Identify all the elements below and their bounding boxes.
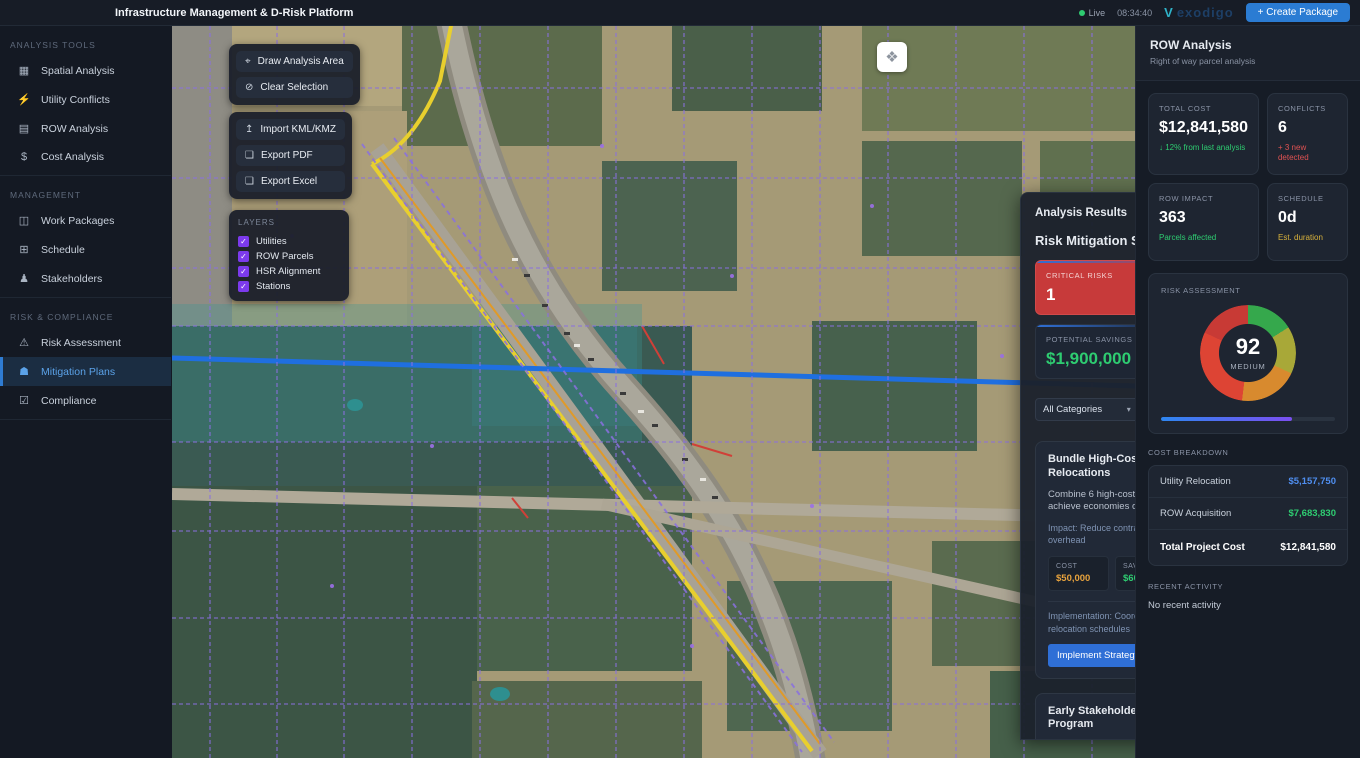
sidebar-item-mitigation-plans[interactable]: ☗Mitigation Plans bbox=[0, 357, 171, 386]
dollar-icon: $ bbox=[17, 151, 31, 163]
recent-activity-empty: No recent activity bbox=[1148, 600, 1348, 611]
grid-icon: ▦ bbox=[17, 64, 31, 77]
risk-progress-track bbox=[1161, 417, 1335, 421]
stat-card-value: 6 bbox=[1278, 119, 1337, 137]
cost-total-value: $12,841,580 bbox=[1280, 542, 1336, 553]
sidebar-item-risk-assessment[interactable]: ⚠Risk Assessment bbox=[0, 328, 171, 357]
cost-row-label: ROW Acquisition bbox=[1160, 508, 1231, 519]
sidebar-item-spatial-analysis[interactable]: ▦Spatial Analysis bbox=[0, 56, 171, 85]
calendar-icon: ⊞ bbox=[17, 243, 31, 256]
layer-toggle-stations[interactable]: ✓Stations bbox=[236, 279, 342, 294]
app-title: Infrastructure Management & D-Risk Platf… bbox=[115, 7, 353, 19]
sidebar-section: MANAGEMENT◫Work Packages⊞Schedule♟Stakeh… bbox=[0, 176, 171, 298]
cost-breakdown-row: Utility Relocation$5,157,750 bbox=[1149, 466, 1347, 498]
checkbox-checked-icon[interactable]: ✓ bbox=[238, 281, 249, 292]
top-bar: Infrastructure Management & D-Risk Platf… bbox=[0, 0, 1360, 26]
warning-icon: ⚠ bbox=[17, 336, 31, 349]
import-kml-button[interactable]: ↥ Import KML/KMZ bbox=[236, 119, 345, 140]
stat-card-subtext: + 3 new detected bbox=[1278, 143, 1337, 164]
map-canvas[interactable]: ⌖ Draw Analysis Area ⊘ Clear Selection ↥… bbox=[172, 26, 1135, 758]
sidebar-item-label: Work Packages bbox=[41, 215, 114, 227]
sidebar-section: RISK & COMPLIANCE⚠Risk Assessment☗Mitiga… bbox=[0, 298, 171, 420]
import-export-panel: ↥ Import KML/KMZ ❏ Export PDF ❏ Export E… bbox=[229, 112, 352, 199]
sidebar-section: ANALYSIS TOOLS▦Spatial Analysis⚡Utility … bbox=[0, 26, 171, 176]
sidebar-item-utility-conflicts[interactable]: ⚡Utility Conflicts bbox=[0, 85, 171, 114]
stat-card-conflicts: CONFLICTS6+ 3 new detected bbox=[1267, 93, 1348, 175]
brand-mark-icon: V bbox=[1164, 5, 1173, 20]
brand-logo: V exodigo bbox=[1164, 5, 1234, 20]
recent-activity-label: RECENT ACTIVITY bbox=[1148, 582, 1348, 591]
trash-icon: ⊘ bbox=[245, 82, 253, 93]
risk-progress-fill bbox=[1161, 417, 1292, 421]
sidebar-section-title: MANAGEMENT bbox=[0, 186, 171, 206]
sidebar-item-compliance[interactable]: ☑Compliance bbox=[0, 386, 171, 415]
sidebar-item-label: Spatial Analysis bbox=[41, 65, 115, 77]
chevron-down-icon: ▾ bbox=[1127, 405, 1131, 414]
clear-selection-button[interactable]: ⊘ Clear Selection bbox=[236, 77, 353, 98]
stat-card-label: ROW IMPACT bbox=[1159, 194, 1248, 203]
create-package-button[interactable]: + Create Package bbox=[1246, 3, 1350, 22]
cost-total-row: Total Project Cost$12,841,580 bbox=[1149, 530, 1347, 565]
stat-card-subtext: Est. duration bbox=[1278, 233, 1337, 243]
analysis-results-title: Analysis Results bbox=[1035, 207, 1127, 219]
sidebar-section-title: RISK & COMPLIANCE bbox=[0, 308, 171, 328]
cost-row-value: $7,683,830 bbox=[1288, 508, 1336, 519]
checkbox-checked-icon[interactable]: ✓ bbox=[238, 251, 249, 262]
sidebar-section-title: ANALYSIS TOOLS bbox=[0, 36, 171, 56]
cost-row-value: $5,157,750 bbox=[1288, 476, 1336, 487]
risk-score-value: 92 bbox=[1236, 334, 1260, 360]
risk-level-label: MEDIUM bbox=[1230, 362, 1265, 371]
sidebar-item-label: Risk Assessment bbox=[41, 337, 121, 349]
row-analysis-panel: ROW Analysis Right of way parcel analysi… bbox=[1135, 26, 1360, 758]
live-status: Live bbox=[1079, 8, 1106, 18]
zap-icon: ⚡ bbox=[17, 93, 31, 106]
package-icon: ◫ bbox=[17, 214, 31, 227]
risk-assessment-card: RISK ASSESSMENT 92 MEDIUM bbox=[1148, 273, 1348, 434]
stat-card-label: SCHEDULE bbox=[1278, 194, 1337, 203]
layer-label: HSR Alignment bbox=[256, 266, 320, 277]
left-sidebar: ANALYSIS TOOLS▦Spatial Analysis⚡Utility … bbox=[0, 26, 172, 758]
stat-card-row-impact: ROW IMPACT363Parcels affected bbox=[1148, 183, 1259, 261]
map-pin-icon: ⌖ bbox=[245, 56, 251, 67]
strategy-stat-box: COST$50,000 bbox=[1048, 556, 1109, 591]
sidebar-item-label: Stakeholders bbox=[41, 273, 102, 285]
live-label: Live bbox=[1089, 8, 1106, 18]
file-icon: ❏ bbox=[245, 150, 254, 161]
layers-panel-title: LAYERS bbox=[236, 217, 342, 229]
layer-toggle-utilities[interactable]: ✓Utilities bbox=[236, 234, 342, 249]
checkbox-checked-icon[interactable]: ✓ bbox=[238, 266, 249, 277]
cost-row-label: Utility Relocation bbox=[1160, 476, 1231, 487]
sidebar-item-label: Compliance bbox=[41, 395, 96, 407]
stat-card-value: $12,841,580 bbox=[1159, 119, 1248, 137]
rows-icon: ▤ bbox=[17, 122, 31, 135]
layer-toggle-hsr-alignment[interactable]: ✓HSR Alignment bbox=[236, 264, 342, 279]
stat-card-label: CONFLICTS bbox=[1278, 104, 1337, 113]
risk-score-gauge: 92 MEDIUM bbox=[1200, 305, 1296, 401]
stat-label: COST bbox=[1056, 563, 1101, 570]
checkbox-checked-icon[interactable]: ✓ bbox=[238, 236, 249, 247]
risk-assessment-label: RISK ASSESSMENT bbox=[1161, 286, 1335, 295]
cost-breakdown-row: ROW Acquisition$7,683,830 bbox=[1149, 498, 1347, 530]
sidebar-item-schedule[interactable]: ⊞Schedule bbox=[0, 235, 171, 264]
sidebar-item-label: Utility Conflicts bbox=[41, 94, 110, 106]
stat-card-subtext: Parcels affected bbox=[1159, 233, 1248, 243]
layer-label: Stations bbox=[256, 281, 290, 292]
brand-name: exodigo bbox=[1177, 5, 1234, 20]
sidebar-item-cost-analysis[interactable]: $Cost Analysis bbox=[0, 143, 171, 171]
sidebar-item-work-packages[interactable]: ◫Work Packages bbox=[0, 206, 171, 235]
layers-panel: LAYERS ✓Utilities✓ROW Parcels✓HSR Alignm… bbox=[229, 210, 349, 301]
stat-card-value: 363 bbox=[1159, 209, 1248, 227]
sidebar-item-stakeholders[interactable]: ♟Stakeholders bbox=[0, 264, 171, 293]
sidebar-item-label: ROW Analysis bbox=[41, 123, 108, 135]
export-pdf-button[interactable]: ❏ Export PDF bbox=[236, 145, 345, 166]
cost-breakdown-label: COST BREAKDOWN bbox=[1148, 448, 1348, 457]
stat-card-subtext: ↓ 12% from last analysis bbox=[1159, 143, 1248, 153]
live-dot-icon bbox=[1079, 10, 1085, 16]
users-icon: ♟ bbox=[17, 272, 31, 285]
sidebar-item-row-analysis[interactable]: ▤ROW Analysis bbox=[0, 114, 171, 143]
categories-select[interactable]: All Categories ▾ bbox=[1035, 398, 1139, 421]
implement-strategy-button[interactable]: Implement Strategy bbox=[1048, 644, 1148, 667]
sidebar-item-label: Mitigation Plans bbox=[41, 366, 115, 378]
shield-icon: ☗ bbox=[17, 365, 31, 378]
stat-card-schedule: SCHEDULE0dEst. duration bbox=[1267, 183, 1348, 261]
layer-label: Utilities bbox=[256, 236, 287, 247]
upload-icon: ↥ bbox=[245, 124, 253, 135]
clock: 08:34:40 bbox=[1117, 8, 1152, 18]
stat-card-label: TOTAL COST bbox=[1159, 104, 1248, 113]
draw-analysis-area-button[interactable]: ⌖ Draw Analysis Area bbox=[236, 51, 353, 72]
export-excel-button[interactable]: ❏ Export Excel bbox=[236, 171, 345, 192]
file-icon: ❏ bbox=[245, 176, 254, 187]
stat-card-value: 0d bbox=[1278, 209, 1337, 227]
stat-value: $50,000 bbox=[1056, 573, 1101, 584]
layer-toggle-row-parcels[interactable]: ✓ROW Parcels bbox=[236, 249, 342, 264]
draw-tools-panel: ⌖ Draw Analysis Area ⊘ Clear Selection bbox=[229, 44, 360, 105]
row-analysis-subtitle: Right of way parcel analysis bbox=[1150, 56, 1346, 66]
sidebar-item-label: Schedule bbox=[41, 244, 85, 256]
cost-total-label: Total Project Cost bbox=[1160, 542, 1245, 553]
map-3d-control-button[interactable]: ❖ bbox=[877, 42, 907, 72]
stat-card-total-cost: TOTAL COST$12,841,580↓ 12% from last ana… bbox=[1148, 93, 1259, 175]
layer-label: ROW Parcels bbox=[256, 251, 314, 262]
row-analysis-title: ROW Analysis bbox=[1150, 38, 1346, 52]
sidebar-item-label: Cost Analysis bbox=[41, 151, 104, 163]
cost-breakdown-table: Utility Relocation$5,157,750ROW Acquisit… bbox=[1148, 465, 1348, 566]
clipboard-icon: ☑ bbox=[17, 394, 31, 407]
